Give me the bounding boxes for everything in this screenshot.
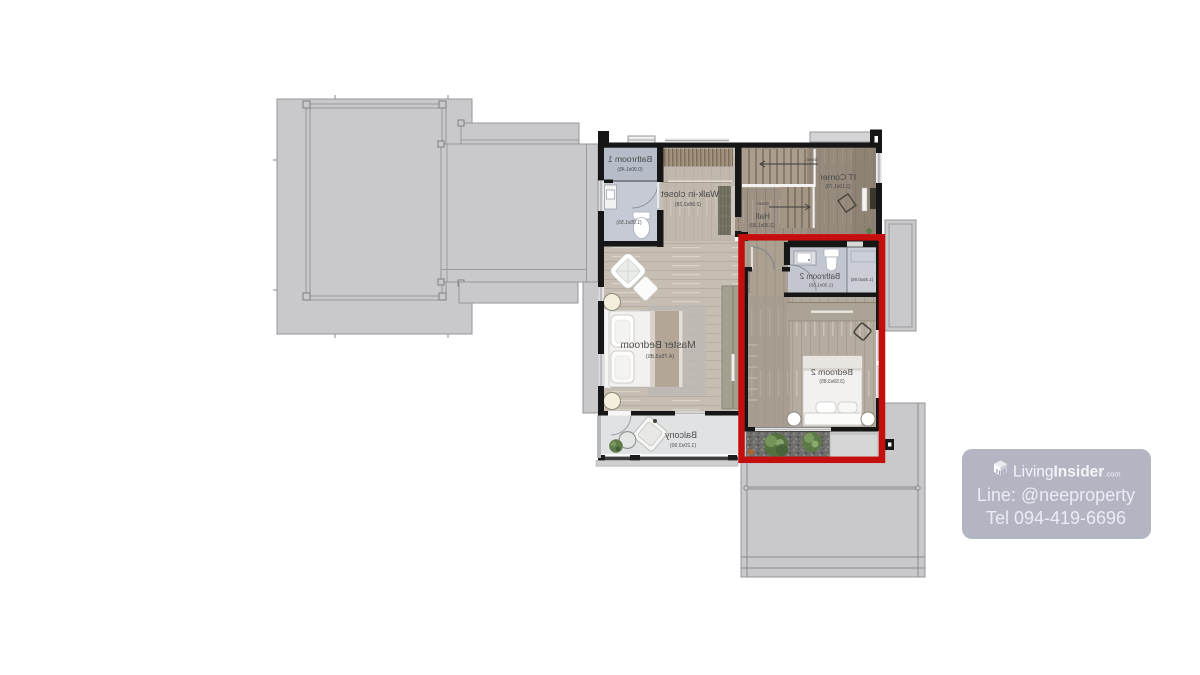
svg-text:Master Bedroom: Master Bedroom: [620, 340, 695, 351]
svg-text:(2.19x1.79): (2.19x1.79): [825, 184, 851, 190]
svg-text:Walk-in closet: Walk-in closet: [661, 188, 719, 199]
svg-text:(0.90x1.45): (0.90x1.45): [617, 167, 643, 173]
svg-text:Hall: Hall: [756, 212, 770, 221]
svg-text:(2.98x2.28): (2.98x2.28): [675, 202, 702, 208]
svg-text:(3.59x3.85): (3.59x3.85): [819, 379, 845, 385]
svg-text:Bathroom 2: Bathroom 2: [800, 272, 840, 281]
svg-text:Balcony: Balcony: [664, 430, 697, 440]
svg-text:(0.95x1.35): (0.95x1.35): [746, 271, 751, 294]
svg-text:Tel 094-419-6696: Tel 094-419-6696: [986, 508, 1126, 528]
svg-text:(1.05x1.55): (1.05x1.55): [616, 220, 642, 226]
svg-text:IT Corner: IT Corner: [820, 172, 856, 182]
svg-text:(1.45x0.85): (1.45x0.85): [850, 277, 873, 282]
svg-text:Down: Down: [757, 201, 769, 206]
svg-text:(1.30x1.55): (1.30x1.55): [808, 283, 833, 289]
svg-text:(2.30x1.30): (2.30x1.30): [749, 223, 775, 229]
svg-text:Line: @neeproperty: Line: @neeproperty: [977, 485, 1135, 505]
svg-text:Down: Down: [806, 157, 818, 162]
svg-text:Bedroom 2: Bedroom 2: [811, 367, 853, 377]
svg-text:Bathroom 1: Bathroom 1: [608, 154, 653, 164]
svg-text:(1.20x3.90): (1.20x3.90): [670, 443, 697, 449]
svg-text:(4.75x3.85): (4.75x3.85): [646, 354, 674, 360]
